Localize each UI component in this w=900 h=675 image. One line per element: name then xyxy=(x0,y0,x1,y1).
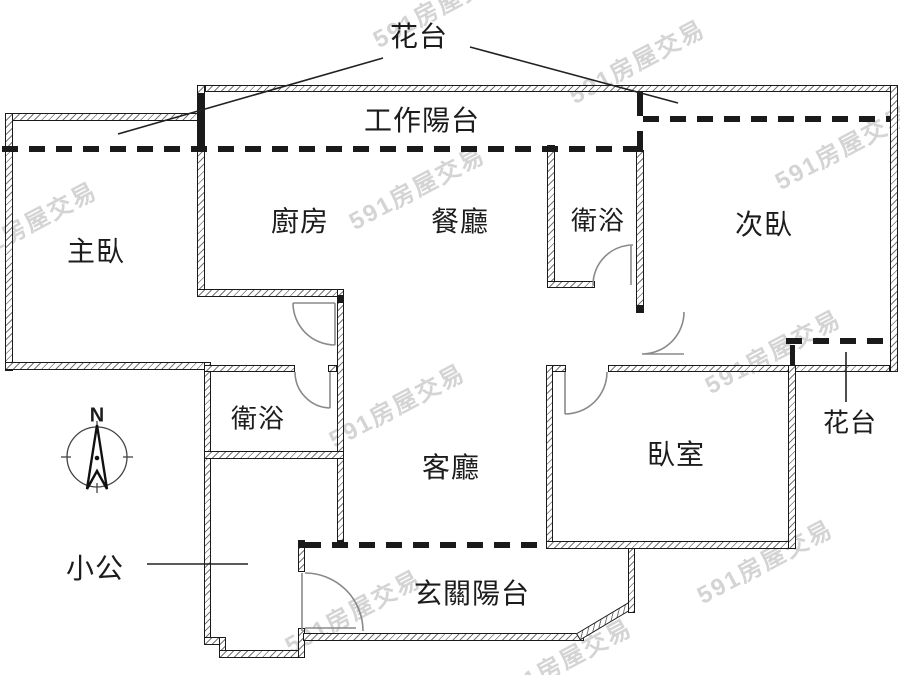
wall-cap-bath-right xyxy=(636,305,644,313)
dashed-living-south xyxy=(305,542,546,548)
wall-bedroom-right xyxy=(788,365,796,549)
label-flower-right: 花台 xyxy=(823,403,877,440)
wall-balcony-bottom xyxy=(303,633,584,641)
label-master-bedroom: 主臥 xyxy=(67,230,125,270)
watermark: 591房屋交易 xyxy=(690,509,839,610)
wall-bath-top-bottom xyxy=(547,281,595,288)
leader-lines xyxy=(118,47,846,564)
wall-right xyxy=(890,85,898,372)
watermark: 591房屋交易 xyxy=(698,299,847,400)
wall-bedroom-north-b xyxy=(608,365,890,372)
label-bathroom-top: 衛浴 xyxy=(571,201,625,238)
wall-bath-left-bottom xyxy=(204,451,344,459)
flower-bed-tick xyxy=(790,345,795,366)
label-small-common: 小公 xyxy=(66,547,124,587)
wall-bedroom-left xyxy=(546,365,553,549)
label-dining-room: 餐廳 xyxy=(431,200,489,240)
window-bar-mid-lower xyxy=(637,131,643,152)
wall-bath-left-top-b xyxy=(328,365,337,372)
wall-bath-left-top-a xyxy=(204,365,295,372)
label-second-bedroom: 次臥 xyxy=(735,203,793,243)
wall-master-top xyxy=(5,113,204,121)
label-living-room: 客廳 xyxy=(422,446,480,486)
wall-bath-top-left xyxy=(547,150,555,288)
label-kitchen: 廚房 xyxy=(271,200,329,240)
wall-corridor-left xyxy=(204,362,211,645)
wall-cap-balcony xyxy=(298,540,305,548)
compass-north-label: N xyxy=(90,405,104,428)
label-bedroom: 臥室 xyxy=(647,433,705,473)
wall-bedroom-bottom xyxy=(546,541,796,549)
door-bedroom xyxy=(565,372,607,414)
wall-kitchen-bottom xyxy=(197,289,344,297)
window-bar-mid-upper xyxy=(637,92,643,116)
watermark: 591房屋交易 xyxy=(562,9,711,110)
label-bathroom-left: 衛浴 xyxy=(231,399,285,436)
wall-notch-bottom xyxy=(219,650,305,658)
wall-top xyxy=(205,85,898,92)
door-kitchen xyxy=(293,303,335,345)
door-bath-left xyxy=(295,372,330,408)
label-entry-balcony: 玄關陽台 xyxy=(414,572,530,612)
compass-icon xyxy=(61,421,133,493)
window-bar-west xyxy=(198,93,204,150)
label-work-balcony: 工作陽台 xyxy=(364,99,480,139)
dashed-balcony-line xyxy=(2,146,637,152)
wall-master-bottom xyxy=(5,362,211,370)
wall-balcony-right xyxy=(628,545,635,613)
watermark: 591房屋交易 xyxy=(768,95,900,196)
dashed-flowerbed-top xyxy=(643,116,890,122)
wall-cap-mid-top xyxy=(337,295,344,303)
floor-plan: 591房屋交易 591房屋交易 591房屋交易 591房屋交易 591房屋交易 … xyxy=(0,0,900,675)
wall-mid-column xyxy=(337,289,344,548)
leader-flower-top-left xyxy=(118,58,383,134)
label-flower-top: 花台 xyxy=(390,15,448,55)
door-bath-top xyxy=(593,245,633,285)
door-second-bedroom xyxy=(642,312,684,354)
wall-bath-top-right xyxy=(636,150,644,312)
dashed-flowerbed-right xyxy=(786,338,890,344)
